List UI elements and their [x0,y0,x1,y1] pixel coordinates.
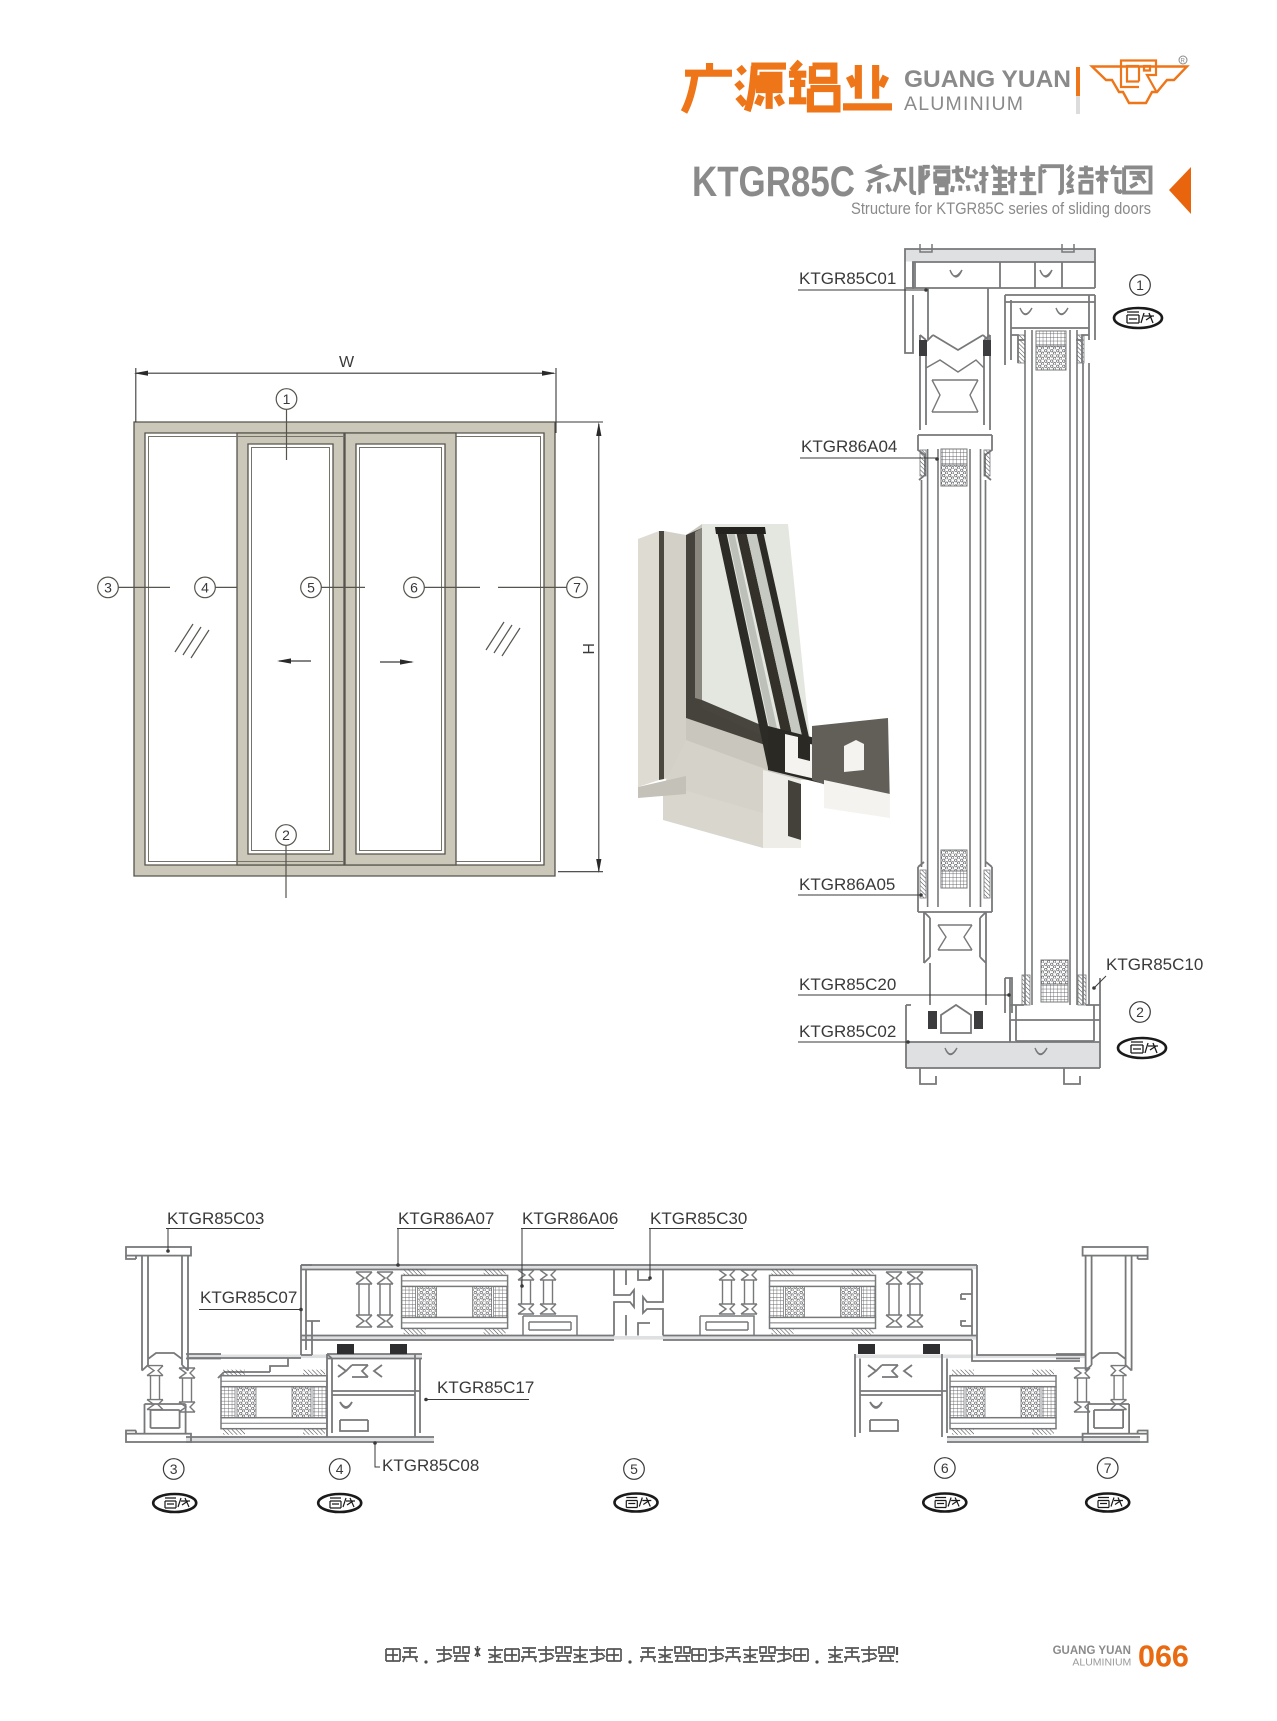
svg-text:066: 066 [1138,1640,1189,1674]
svg-text:7: 7 [1104,1460,1112,1476]
svg-text:KTGR85C03: KTGR85C03 [167,1209,264,1228]
svg-text:KTGR85C08: KTGR85C08 [382,1456,479,1475]
svg-text:KTGR86A06: KTGR86A06 [522,1209,618,1228]
svg-text:KTGR85C07: KTGR85C07 [200,1288,297,1307]
svg-text:1: 1 [283,391,291,407]
svg-text:2: 2 [282,827,290,843]
svg-text:KTGR85C30: KTGR85C30 [650,1209,747,1228]
svg-text:4: 4 [201,579,209,595]
svg-text:Structure for KTGR85C series: Structure for KTGR85C series of sliding … [851,200,1151,218]
svg-text:4: 4 [336,1461,344,1477]
svg-text:W: W [339,354,355,371]
svg-text:6: 6 [410,579,418,595]
svg-text:ALUMINIUM: ALUMINIUM [904,93,1024,115]
svg-text:H: H [579,643,596,655]
svg-text:KTGR85C01: KTGR85C01 [799,269,896,288]
svg-text:KTGR85C02: KTGR85C02 [799,1022,896,1041]
svg-text:6: 6 [941,1460,949,1476]
svg-text:3: 3 [104,579,112,595]
svg-text:1: 1 [1136,277,1144,293]
svg-text:5: 5 [307,579,315,595]
svg-text:KTGR85C10: KTGR85C10 [1106,955,1203,974]
svg-text:KTGR85C: KTGR85C [692,158,855,206]
svg-text:3: 3 [170,1461,178,1477]
svg-text:2: 2 [1136,1004,1144,1020]
svg-text:7: 7 [573,579,581,595]
svg-text:KTGR86A07: KTGR86A07 [398,1209,494,1228]
svg-text:KTGR85C17: KTGR85C17 [437,1378,534,1397]
svg-text:ALUMINIUM: ALUMINIUM [1072,1657,1131,1669]
svg-text:GUANG YUAN: GUANG YUAN [904,66,1071,93]
svg-text:GUANG YUAN: GUANG YUAN [1053,1645,1131,1657]
svg-text:KTGR85C20: KTGR85C20 [799,975,896,994]
svg-text:KTGR86A05: KTGR86A05 [799,875,895,894]
svg-text:KTGR86A04: KTGR86A04 [801,437,897,456]
svg-text:R: R [1181,59,1186,65]
svg-text:5: 5 [630,1461,638,1477]
